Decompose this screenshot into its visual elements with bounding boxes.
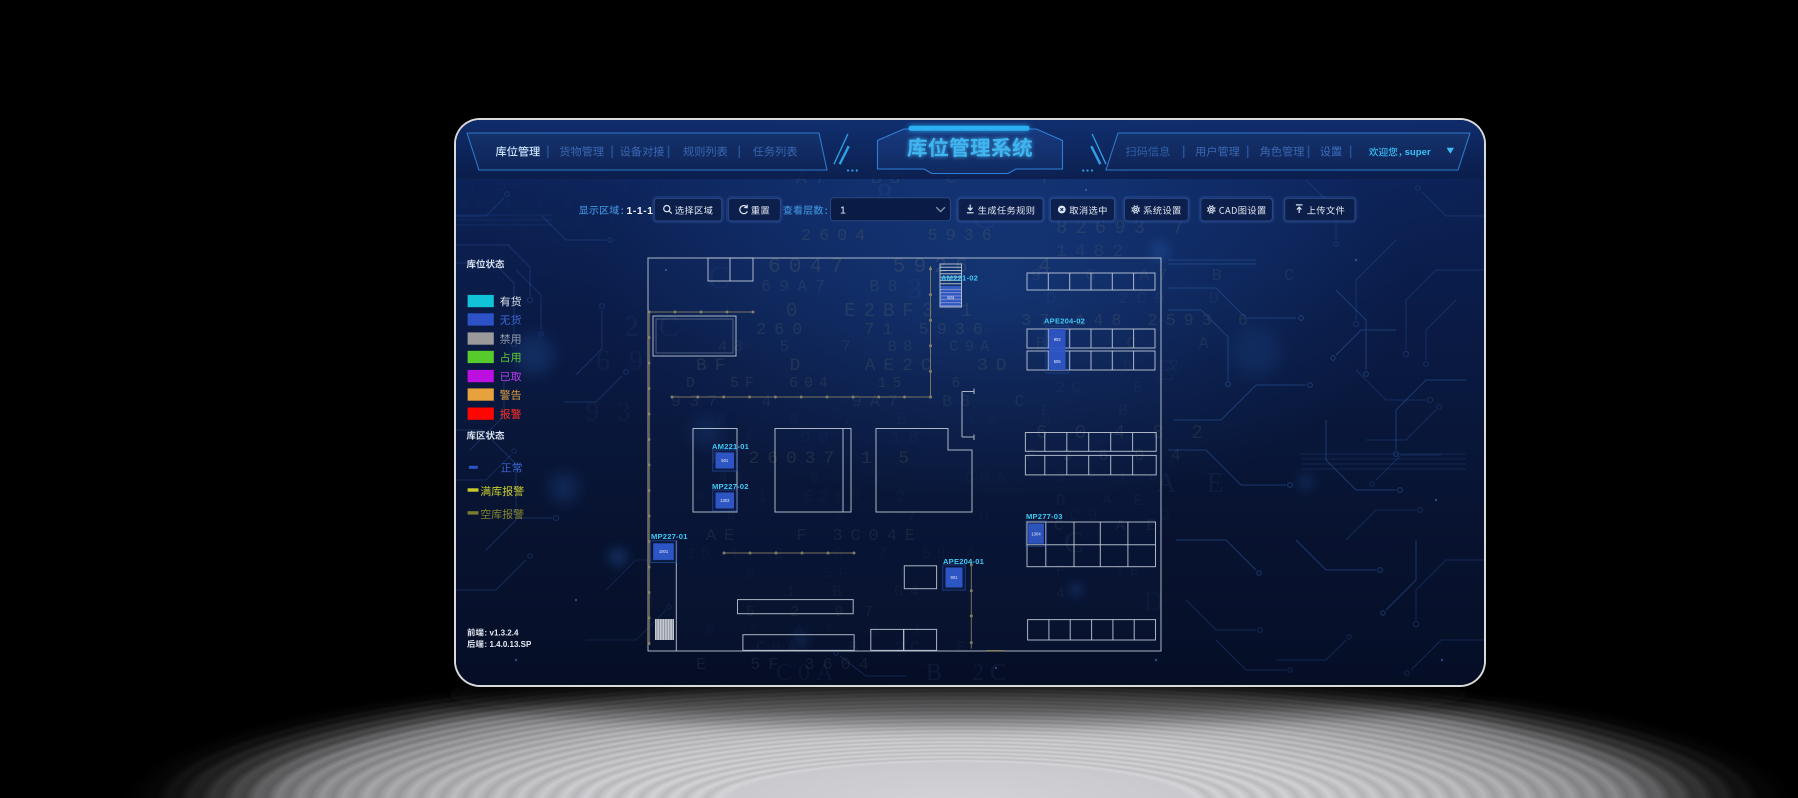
svg-text:1302: 1302 (720, 498, 730, 503)
svg-text:1304: 1304 (1031, 531, 1041, 536)
svg-text:MP227-01: MP227-01 (651, 532, 688, 541)
svg-text:504: 504 (947, 295, 955, 300)
svg-text::: : (825, 205, 829, 217)
svg-text:B 2C: B 2C (926, 660, 1012, 685)
svg-text:901: 901 (951, 575, 959, 580)
svg-text:4 5 2 3 1: 4 5 2 3 1 (466, 177, 666, 195)
svg-text:1.4.0.13.SP: 1.4.0.13.SP (490, 640, 532, 649)
svg-text:1001: 1001 (659, 549, 669, 554)
svg-text:501: 501 (721, 458, 729, 463)
svg-text:AM221-01: AM221-01 (712, 442, 750, 451)
svg-text:AM221-02: AM221-02 (941, 274, 978, 283)
svg-text:APE204-01: APE204-01 (943, 557, 985, 566)
svg-text:1: 1 (840, 204, 846, 216)
svg-text::: : (621, 205, 625, 217)
svg-text:1-1-1: 1-1-1 (627, 205, 654, 217)
svg-text:v1.3.2.4: v1.3.2.4 (490, 629, 519, 638)
svg-text:902: 902 (1054, 337, 1062, 342)
svg-text:APE204-02: APE204-02 (1044, 317, 1085, 326)
svg-text:9 3: 9 3 (586, 397, 637, 426)
svg-text:MP277-03: MP277-03 (1026, 512, 1063, 521)
svg-text:2604 5936: 2604 5936 (801, 227, 1000, 246)
svg-text::: : (484, 639, 487, 649)
svg-text:6 9: 6 9 (596, 346, 649, 377)
svg-text:super: super (1405, 147, 1431, 158)
svg-text::: : (484, 628, 487, 638)
svg-text:505: 505 (1054, 359, 1062, 364)
svg-text:A E: A E (1156, 468, 1230, 499)
svg-text:C0A: C0A (776, 660, 839, 685)
svg-text:MP227-02: MP227-02 (712, 482, 749, 491)
svg-text:0A11 4 2 0: 0A11 4 2 0 (460, 197, 608, 213)
